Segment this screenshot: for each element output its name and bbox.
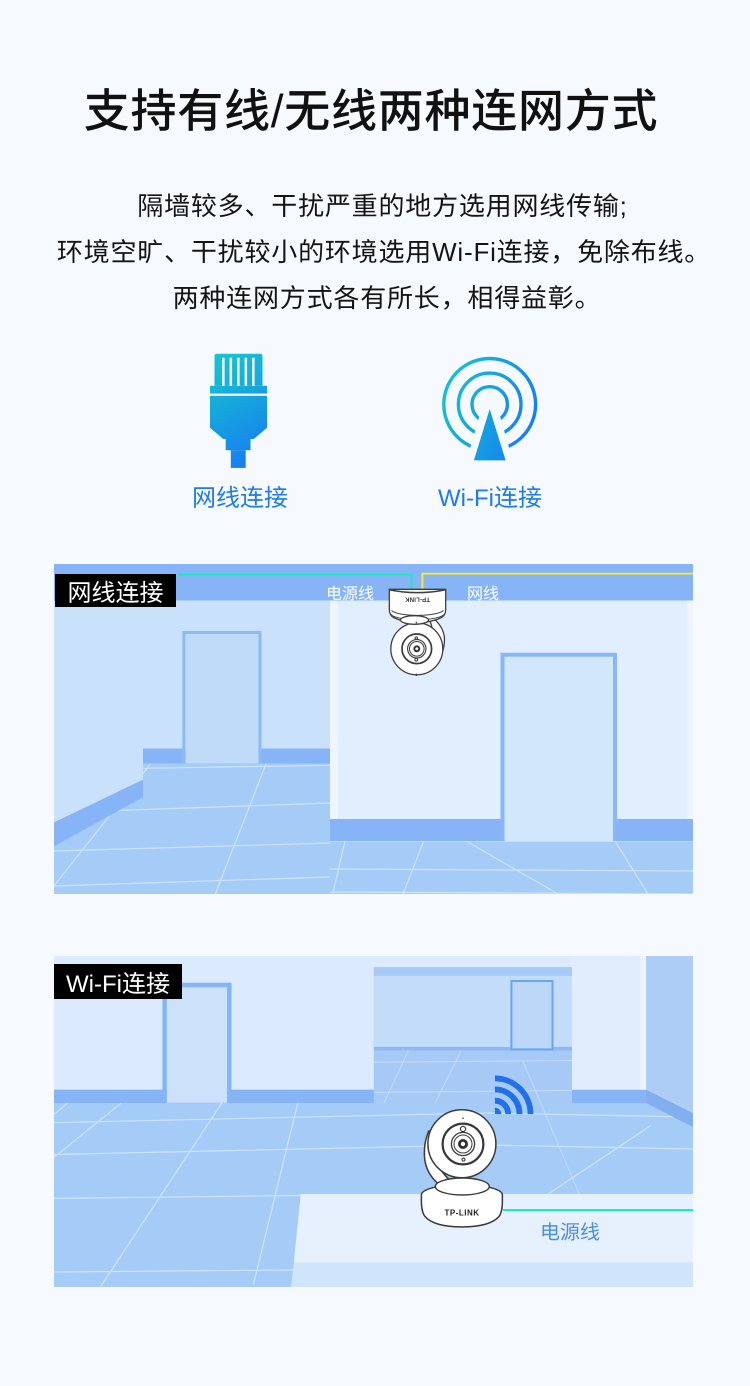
svg-text:TP-LINK: TP-LINK (405, 596, 431, 602)
svg-text:TP-LINK: TP-LINK (444, 1209, 479, 1218)
